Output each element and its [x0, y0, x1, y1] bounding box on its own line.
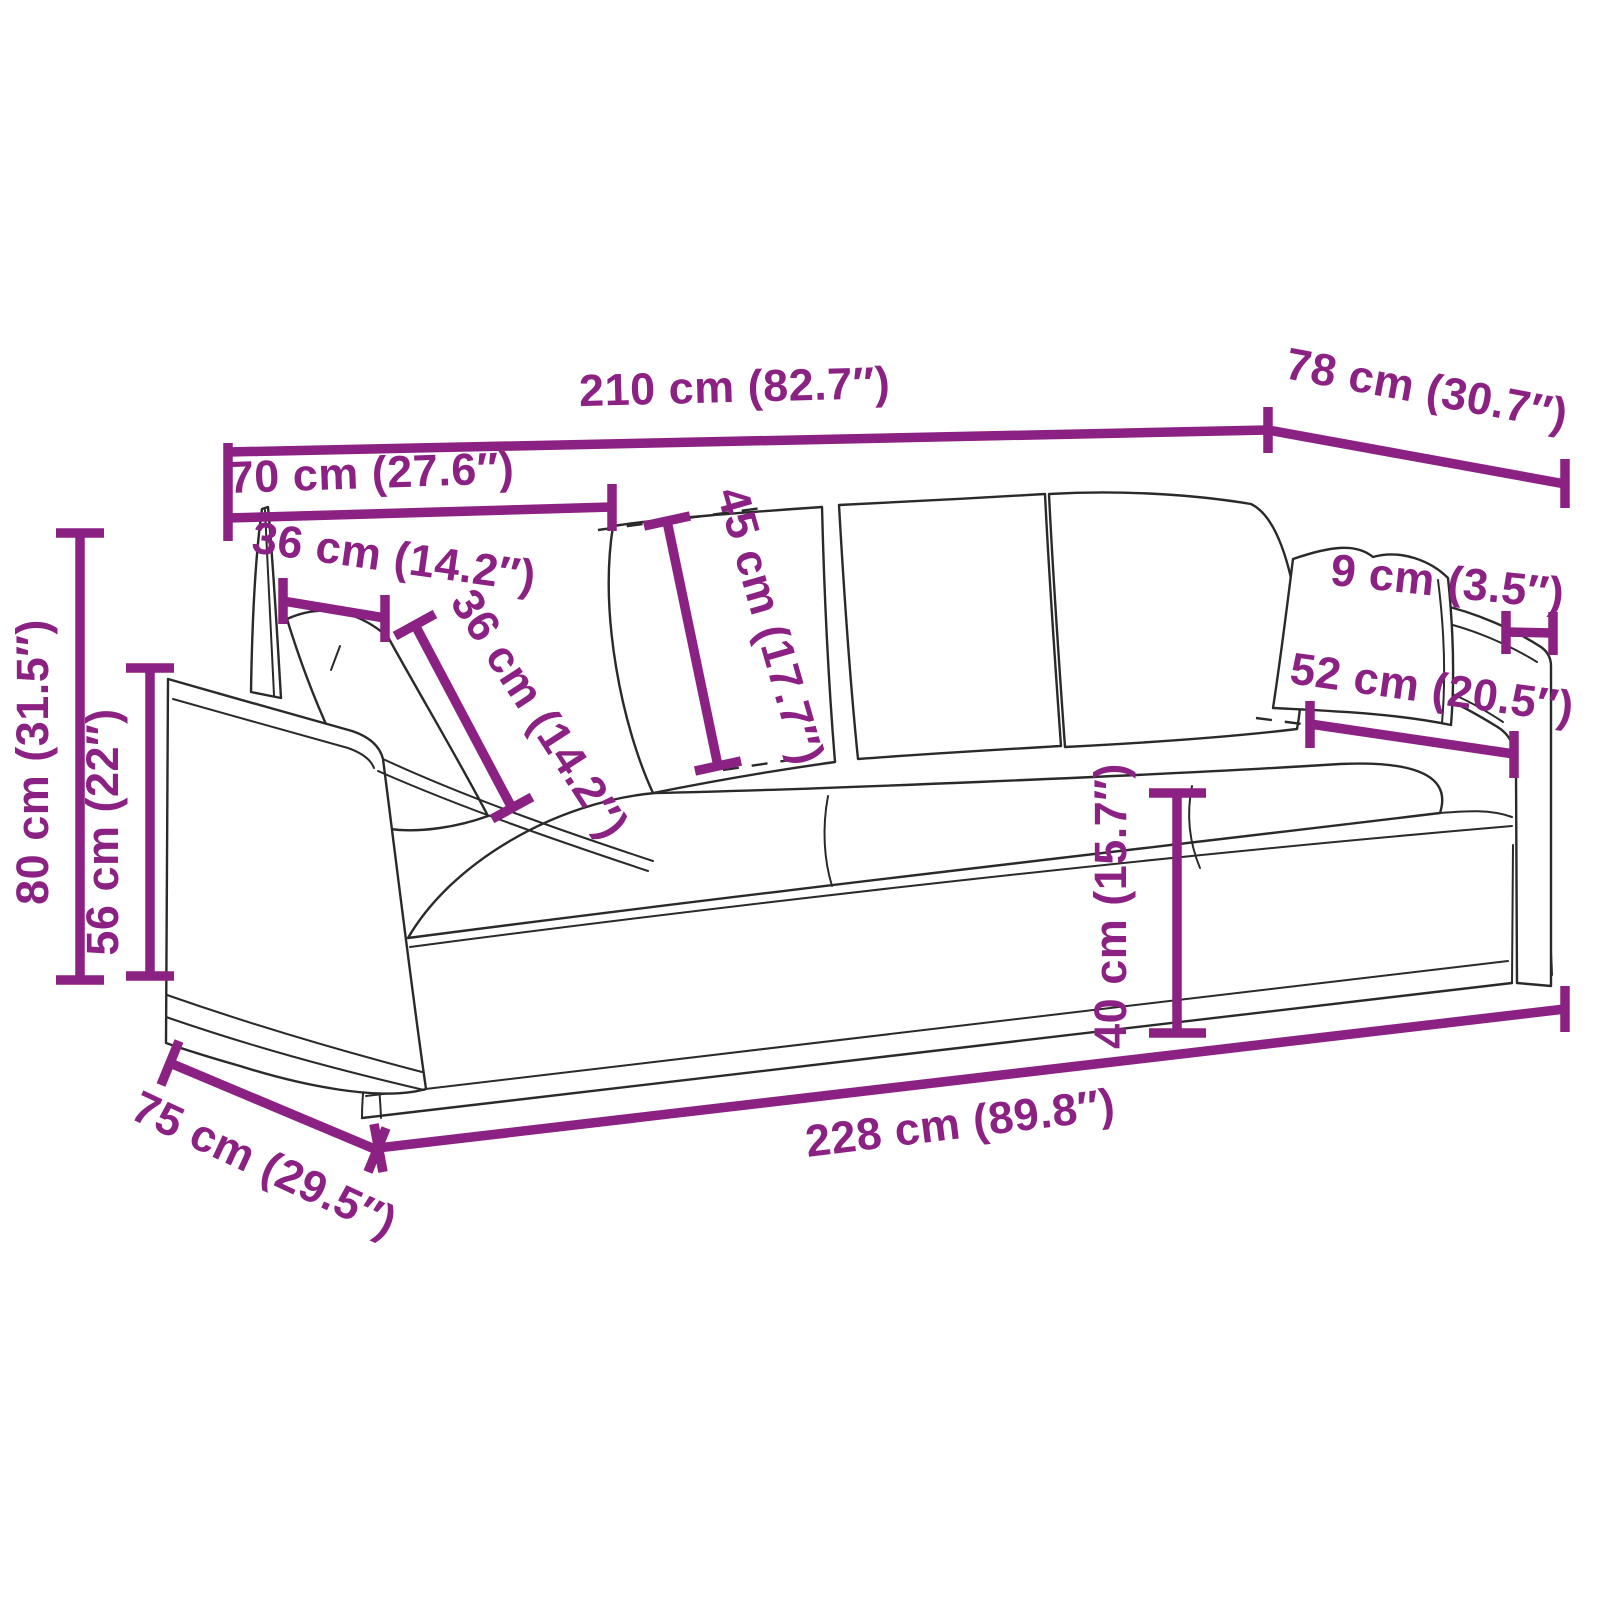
- sofa-skirt-pleat-right-a: [1512, 845, 1513, 983]
- sofa-dimension-diagram: 210 cm (82.7″) 78 cm (30.7″) 70 cm (27.6…: [0, 0, 1600, 1600]
- sofa-base-top-edge: [1440, 811, 1512, 817]
- dim-line: [1310, 724, 1514, 754]
- dim-label-78cm: 78 cm (30.7″): [1282, 338, 1572, 440]
- dim-label-40cm: 40 cm (15.7″): [1085, 763, 1136, 1049]
- sofa-back-cushion-middle: [839, 494, 1061, 759]
- dim-label-210cm: 210 cm (82.7″): [578, 357, 890, 416]
- dimension-arm-height: 56 cm (22″): [77, 668, 174, 976]
- dim-label-56cm: 56 cm (22″): [77, 708, 128, 955]
- diagram-canvas: 210 cm (82.7″) 78 cm (30.7″) 70 cm (27.6…: [0, 0, 1600, 1600]
- dim-label-70cm: 70 cm (27.6″): [228, 442, 515, 503]
- sofa-skirt-hem-bottom: [362, 983, 1512, 1118]
- sofa-back-cushion-right: [1049, 492, 1302, 747]
- sofa-skirt-hem-top: [366, 961, 1508, 1096]
- dim-line: [1506, 632, 1553, 633]
- dim-line: [1268, 430, 1565, 484]
- dimension-top-depth: 78 cm (30.7″): [1268, 338, 1572, 508]
- dimension-base-width: 228 cm (89.8″): [374, 986, 1565, 1172]
- dim-label-80cm: 80 cm (31.5″): [7, 619, 58, 905]
- dim-label-36cm-width: 36 cm (14.2″): [249, 512, 539, 602]
